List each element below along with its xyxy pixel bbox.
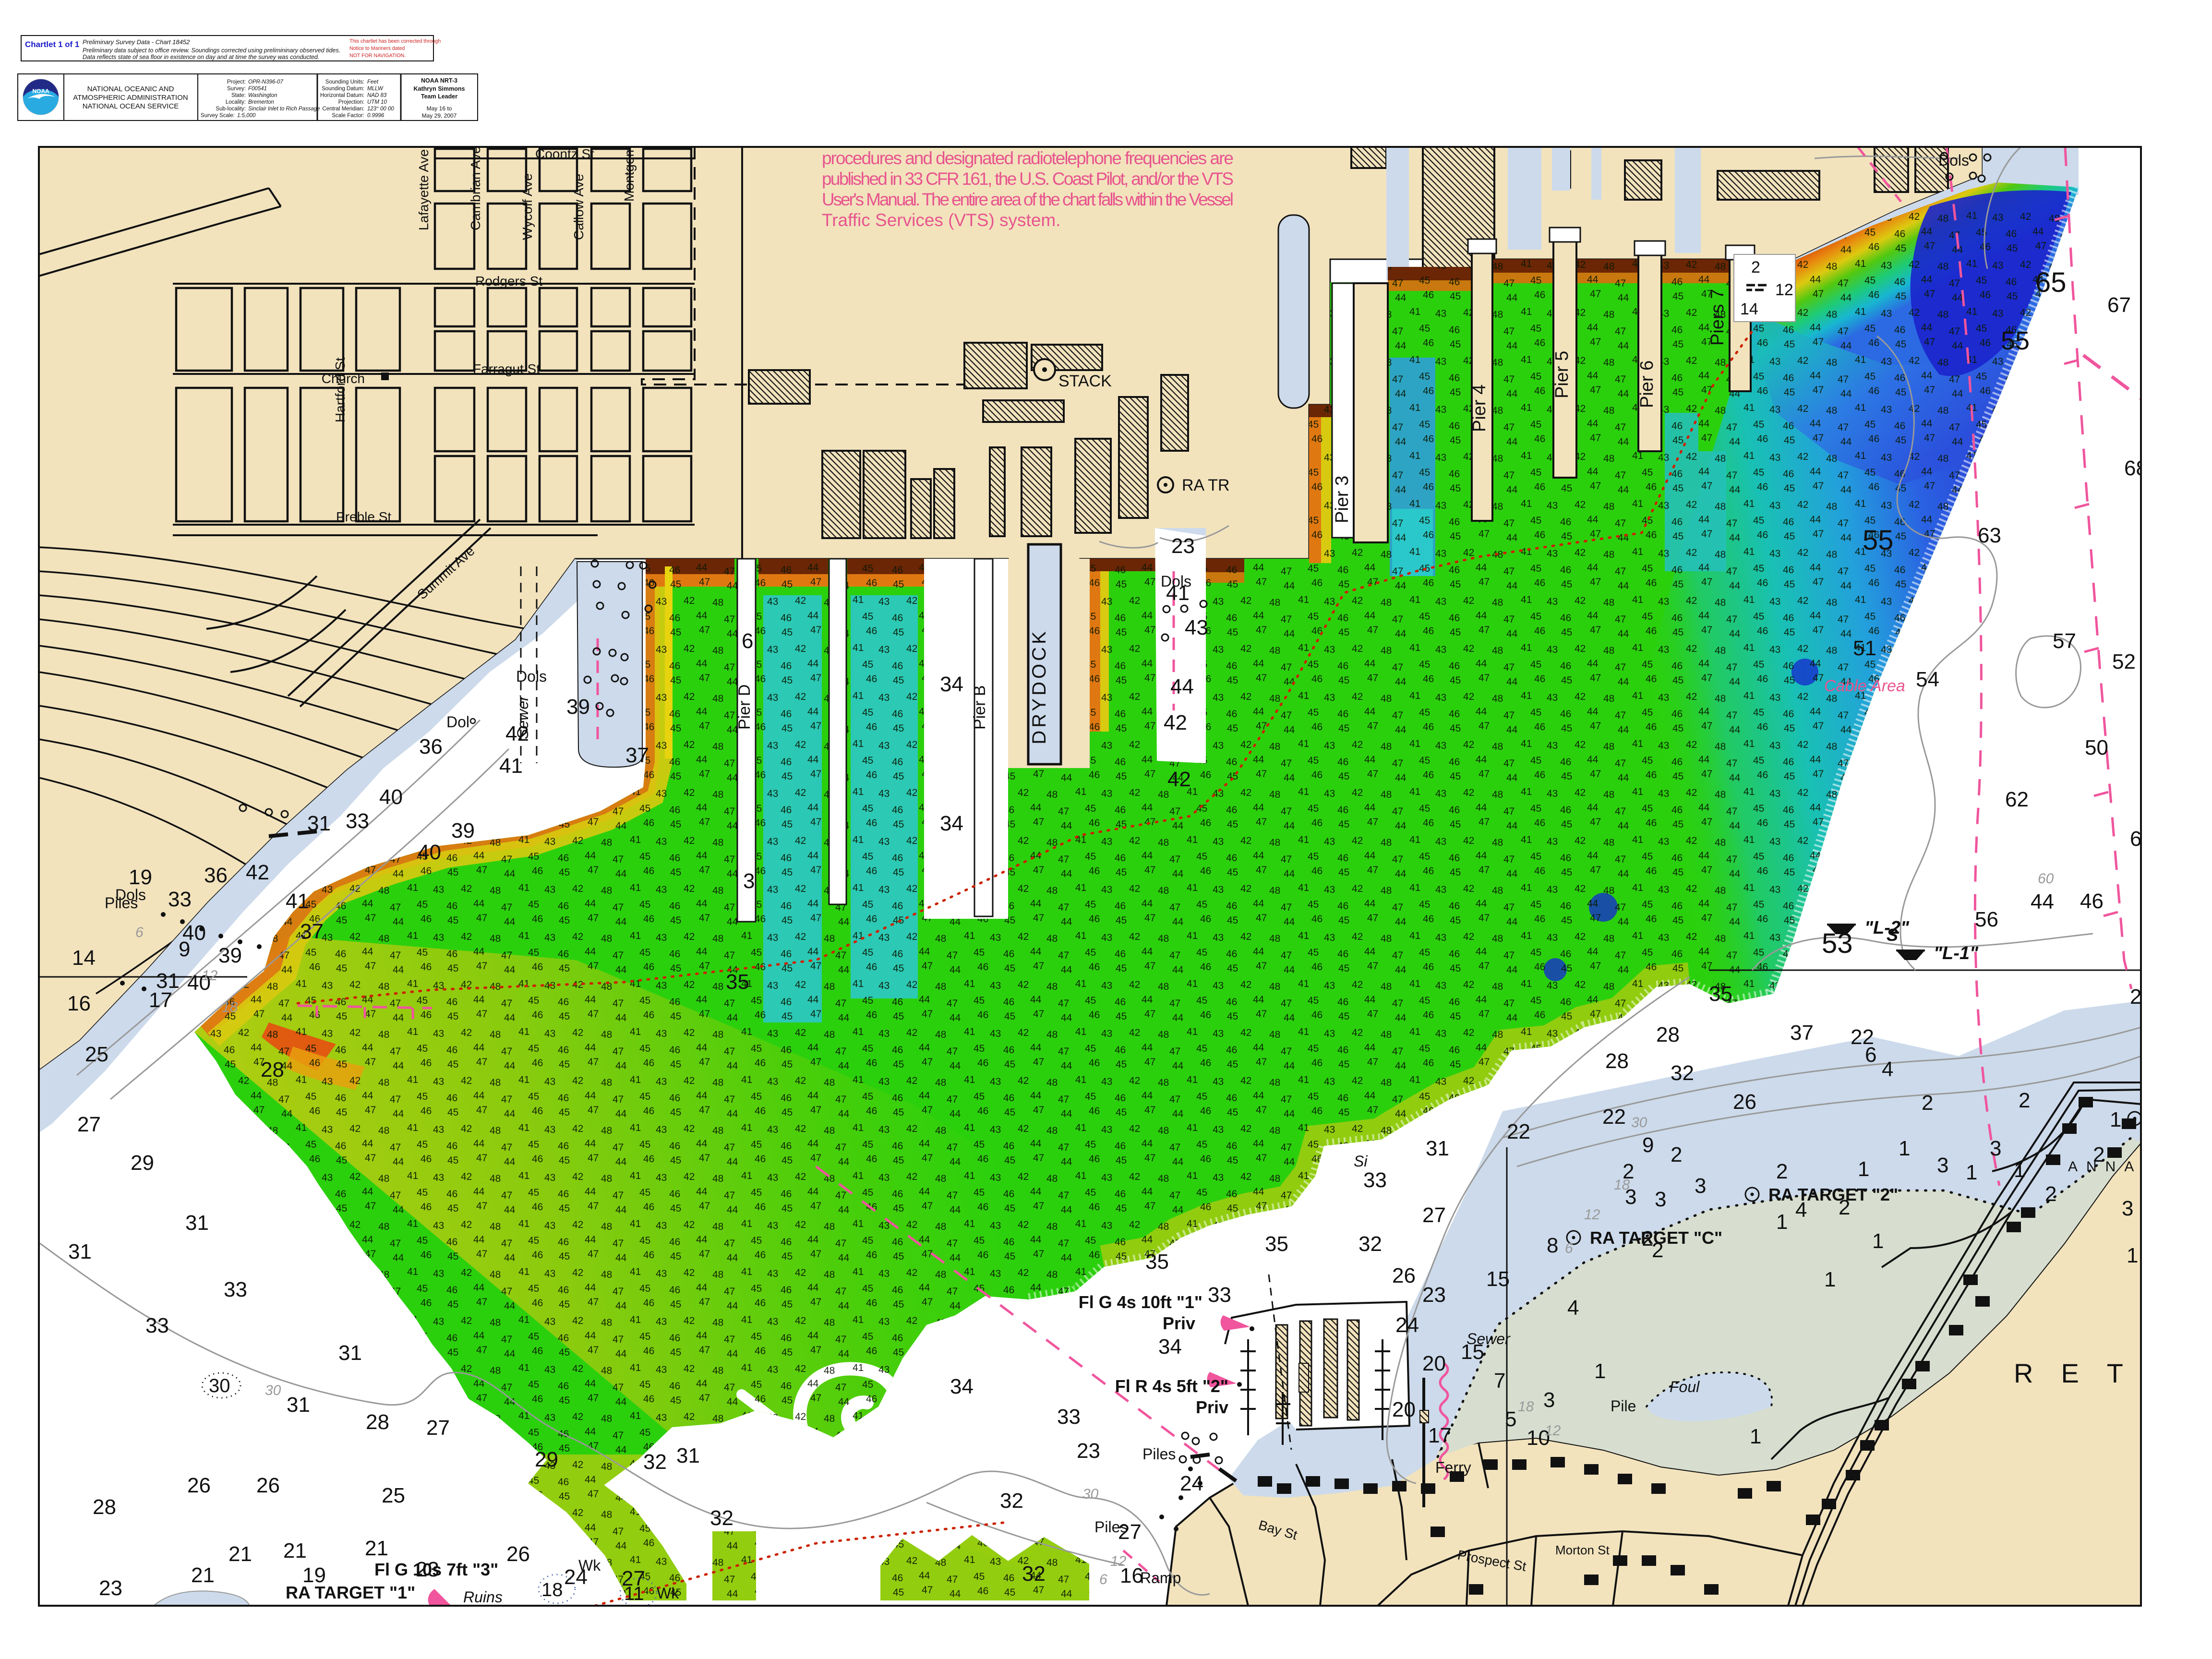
svg-text:Sounding Units:: Sounding Units:	[325, 79, 364, 85]
svg-text:21: 21	[191, 1563, 215, 1587]
svg-text:32: 32	[1358, 1232, 1382, 1256]
svg-text:26: 26	[506, 1542, 530, 1566]
svg-text:Rodgers St: Rodgers St	[475, 274, 542, 289]
svg-text:3: 3	[2122, 1197, 2133, 1220]
svg-text:NOAA NRT-3: NOAA NRT-3	[421, 77, 457, 84]
svg-text:Central Meridian:: Central Meridian:	[322, 106, 364, 112]
svg-text:Dol: Dol	[446, 713, 469, 731]
svg-text:55: 55	[1863, 525, 1894, 556]
svg-text:18: 18	[222, 999, 238, 1015]
svg-text:Cambrian Ave: Cambrian Ave	[468, 146, 483, 230]
svg-text:17: 17	[1428, 1424, 1452, 1447]
svg-text:Preliminary Survey Data - Char: Preliminary Survey Data - Chart 18452	[83, 38, 190, 46]
svg-text:23: 23	[1422, 1283, 1446, 1307]
svg-text:16: 16	[67, 992, 91, 1015]
svg-text:Kathryn Simmons: Kathryn Simmons	[414, 85, 465, 92]
svg-text:35: 35	[726, 970, 749, 994]
svg-text:F00541: F00541	[248, 86, 267, 92]
svg-text:34: 34	[940, 812, 963, 835]
svg-text:1: 1	[1824, 1268, 1836, 1291]
svg-text:27: 27	[1422, 1203, 1446, 1227]
svg-text:54: 54	[1916, 668, 1939, 691]
svg-text:29: 29	[131, 1151, 154, 1175]
svg-text:0.9996: 0.9996	[367, 113, 385, 119]
svg-text:Horizontal Datum:: Horizontal Datum:	[320, 93, 364, 98]
svg-text:33: 33	[1208, 1283, 1231, 1307]
svg-text:36: 36	[419, 735, 443, 758]
svg-text:31: 31	[307, 812, 331, 835]
svg-text:25: 25	[85, 1043, 108, 1066]
svg-text:2: 2	[1776, 1160, 1788, 1183]
svg-text:26: 26	[187, 1474, 211, 1497]
svg-text:53: 53	[1822, 928, 1853, 959]
svg-text:35: 35	[1265, 1232, 1288, 1256]
svg-text:33: 33	[346, 809, 369, 833]
svg-text:60: 60	[2038, 871, 2054, 887]
svg-text:2: 2	[1671, 1143, 1682, 1166]
svg-text:Survey Scale:: Survey Scale:	[201, 113, 235, 119]
svg-text:28: 28	[261, 1058, 284, 1082]
svg-text:20: 20	[1392, 1398, 1416, 1421]
svg-text:33: 33	[224, 1278, 247, 1301]
svg-text:1: 1	[2127, 1244, 2138, 1267]
svg-text:20: 20	[1422, 1352, 1446, 1375]
svg-text:Pier 6: Pier 6	[1637, 361, 1657, 408]
svg-text:May 29, 2007: May 29, 2007	[422, 112, 457, 119]
svg-text:27: 27	[1118, 1520, 1142, 1544]
svg-text:19: 19	[302, 1563, 326, 1587]
svg-text:41: 41	[286, 890, 309, 913]
svg-text:Piers 7: Piers 7	[1707, 289, 1728, 346]
svg-text:24: 24	[1180, 1472, 1203, 1495]
svg-text:42: 42	[1167, 768, 1191, 791]
svg-text:Sounding Datum:: Sounding Datum:	[322, 86, 364, 92]
svg-text:46: 46	[2080, 890, 2104, 913]
svg-text:18: 18	[541, 1579, 563, 1600]
svg-text:14: 14	[1740, 300, 1758, 318]
svg-text:MLLW: MLLW	[367, 86, 384, 92]
svg-text:1: 1	[2014, 1158, 2025, 1182]
svg-text:57: 57	[2053, 629, 2076, 653]
svg-text:Preble St: Preble St	[336, 509, 391, 524]
svg-text:3: 3	[1937, 1154, 1948, 1177]
svg-text:37: 37	[625, 744, 649, 767]
svg-text:42: 42	[505, 722, 529, 745]
svg-text:50: 50	[2085, 736, 2108, 759]
svg-text:Ruins: Ruins	[463, 1588, 503, 1606]
svg-text:Wycoff Ave: Wycoff Ave	[520, 173, 535, 240]
svg-text:28: 28	[366, 1410, 389, 1434]
svg-text:31: 31	[287, 1393, 310, 1417]
svg-text:Feet: Feet	[367, 79, 379, 85]
svg-text:23: 23	[99, 1576, 122, 1600]
svg-text:11: 11	[624, 1583, 644, 1604]
svg-text:NOAA: NOAA	[32, 88, 49, 95]
svg-text:Notice to Mariners dated: Notice to Mariners dated	[349, 46, 405, 51]
svg-text:35: 35	[1145, 1250, 1169, 1274]
svg-text:Bremerton: Bremerton	[248, 99, 274, 105]
svg-text:23: 23	[1171, 534, 1195, 558]
svg-text:14: 14	[72, 946, 96, 970]
svg-text:67: 67	[2107, 293, 2131, 317]
svg-text:UTM 10: UTM 10	[367, 99, 387, 105]
svg-text:Project:: Project:	[227, 79, 246, 85]
svg-text:Hartford St: Hartford St	[333, 357, 348, 422]
svg-text:RA TARGET "2": RA TARGET "2"	[1768, 1185, 1898, 1204]
svg-text:33: 33	[1057, 1405, 1081, 1429]
svg-text:DRYDOCK: DRYDOCK	[1029, 628, 1050, 744]
svg-text:22: 22	[1602, 1105, 1626, 1129]
svg-text:21: 21	[365, 1537, 388, 1560]
svg-text:Team Leader: Team Leader	[421, 93, 457, 100]
svg-text:12: 12	[1545, 1423, 1561, 1439]
svg-text:52: 52	[2112, 650, 2136, 673]
svg-text:24: 24	[564, 1565, 588, 1589]
svg-text:32: 32	[1000, 1489, 1023, 1513]
svg-text:STACK: STACK	[1058, 372, 1112, 390]
svg-text:Lafayette Ave: Lafayette Ave	[416, 149, 431, 230]
svg-text:23: 23	[1077, 1439, 1100, 1463]
svg-text:28: 28	[1605, 1049, 1629, 1073]
svg-text:Pile: Pile	[1611, 1397, 1636, 1415]
svg-text:1: 1	[1594, 1359, 1606, 1383]
svg-text:12: 12	[202, 968, 218, 984]
svg-text:62: 62	[2005, 788, 2029, 811]
svg-text:26: 26	[256, 1474, 280, 1497]
svg-text:5: 5	[1505, 1407, 1516, 1431]
svg-text:Piles: Piles	[105, 894, 138, 912]
svg-text:41: 41	[1166, 581, 1190, 605]
svg-text:Priv: Priv	[1163, 1313, 1195, 1333]
svg-text:34: 34	[950, 1375, 974, 1398]
svg-text:21: 21	[283, 1539, 307, 1563]
svg-text:1: 1	[1776, 1210, 1788, 1234]
svg-text:37: 37	[300, 920, 324, 943]
svg-text:24: 24	[1395, 1313, 1419, 1337]
svg-text:65: 65	[2035, 267, 2067, 298]
svg-text:30: 30	[1082, 1486, 1099, 1502]
svg-text:39: 39	[451, 819, 475, 842]
svg-text:Cable Area: Cable Area	[1824, 677, 1905, 695]
svg-text:8: 8	[1547, 1234, 1558, 1257]
svg-text:Foul: Foul	[1670, 1378, 1700, 1395]
svg-text:RA TR: RA TR	[1182, 476, 1230, 494]
svg-text:State:: State:	[231, 93, 246, 98]
svg-text:3: 3	[1990, 1137, 2001, 1160]
svg-text:18: 18	[1518, 1399, 1534, 1415]
svg-text:Pier 4: Pier 4	[1469, 385, 1490, 432]
svg-text:27: 27	[77, 1113, 101, 1136]
svg-text:32: 32	[1022, 1562, 1046, 1586]
svg-text:31: 31	[68, 1240, 92, 1263]
svg-text:29: 29	[535, 1448, 558, 1471]
svg-text:51: 51	[1853, 637, 1876, 660]
svg-text:NOT FOR NAVIGATION.: NOT FOR NAVIGATION.	[349, 53, 406, 59]
svg-text:19: 19	[129, 866, 152, 889]
svg-text:33: 33	[145, 1314, 169, 1337]
svg-text:2: 2	[1922, 1091, 1933, 1115]
svg-text:3: 3	[1543, 1388, 1555, 1412]
svg-text:123° 00 00: 123° 00 00	[367, 106, 394, 112]
svg-text:May 16 to: May 16 to	[427, 105, 452, 112]
svg-text:44: 44	[1170, 675, 1194, 698]
svg-text:Dols: Dols	[516, 668, 547, 685]
svg-text:15: 15	[1461, 1340, 1484, 1364]
svg-text:Fl R 4s 5ft "2": Fl R 4s 5ft "2"	[1115, 1376, 1228, 1396]
svg-text:28: 28	[93, 1495, 116, 1519]
svg-text:Dols: Dols	[1938, 152, 1969, 169]
svg-text:4: 4	[1795, 1198, 1807, 1222]
svg-text:6: 6	[135, 925, 144, 940]
svg-text:40: 40	[418, 841, 441, 864]
svg-text:2: 2	[1751, 258, 1760, 276]
svg-text:9: 9	[1642, 1133, 1654, 1157]
svg-text:42: 42	[246, 861, 269, 884]
svg-text:41: 41	[499, 754, 523, 778]
svg-text:6: 6	[1099, 1572, 1107, 1587]
svg-text:35: 35	[1709, 982, 1732, 1006]
svg-text:31: 31	[338, 1341, 362, 1365]
svg-text:Traffic Services (VTS) system.: Traffic Services (VTS) system.	[822, 210, 1061, 230]
svg-text:Si: Si	[1354, 1153, 1368, 1170]
svg-text:33: 33	[1363, 1168, 1387, 1192]
svg-text:12: 12	[1584, 1207, 1600, 1223]
svg-text:Washington: Washington	[248, 93, 277, 98]
svg-text:3: 3	[1695, 1174, 1706, 1198]
svg-text:2: 2	[1839, 1196, 1850, 1219]
svg-text:27: 27	[426, 1416, 450, 1440]
svg-text:4: 4	[1567, 1296, 1579, 1320]
svg-text:1: 1	[1966, 1161, 1977, 1184]
svg-text:NATIONAL OCEANIC AND: NATIONAL OCEANIC AND	[87, 85, 174, 93]
svg-text:56: 56	[1975, 908, 1998, 931]
svg-text:Priv: Priv	[1196, 1397, 1228, 1417]
svg-text:2: 2	[2019, 1089, 2030, 1112]
svg-text:1: 1	[1899, 1137, 1910, 1160]
svg-text:1: 1	[1872, 1229, 1884, 1253]
svg-text:36: 36	[204, 864, 228, 887]
svg-text:Wk: Wk	[657, 1585, 679, 1602]
svg-text:7: 7	[1494, 1369, 1505, 1393]
svg-text:30: 30	[1631, 1115, 1647, 1130]
svg-text:"L-1": "L-1"	[1934, 943, 1979, 963]
svg-text:39: 39	[566, 695, 590, 719]
svg-text:40: 40	[182, 921, 206, 945]
svg-text:Sinclair Inlet to Rich Passage: Sinclair Inlet to Rich Passage	[248, 106, 320, 112]
svg-text:Pier B: Pier B	[971, 685, 989, 730]
svg-text:17: 17	[149, 988, 172, 1012]
svg-text:1: 1	[1858, 1157, 1869, 1181]
svg-text:Farragut St: Farragut St	[473, 361, 540, 376]
svg-text:32: 32	[710, 1506, 733, 1530]
svg-text:23: 23	[416, 1558, 439, 1581]
svg-text:25: 25	[382, 1484, 405, 1507]
svg-text:3: 3	[1655, 1188, 1666, 1211]
svg-text:39: 39	[218, 944, 242, 967]
svg-text:22: 22	[1507, 1120, 1530, 1143]
svg-text:Ramp: Ramp	[1140, 1569, 1181, 1587]
svg-text:4: 4	[1882, 1058, 1893, 1081]
svg-text:31: 31	[1426, 1137, 1449, 1160]
svg-text:Chartlet 1 of 1: Chartlet 1 of 1	[25, 40, 79, 49]
svg-text:12: 12	[1110, 1553, 1127, 1569]
svg-text:Callow Ave: Callow Ave	[571, 174, 586, 240]
svg-text:1: 1	[2110, 1108, 2121, 1131]
svg-text:43: 43	[1185, 616, 1208, 639]
svg-text:1:5,000: 1:5,000	[237, 113, 256, 119]
svg-text:Locality:: Locality:	[226, 99, 246, 105]
svg-text:6: 6	[1565, 1240, 1573, 1256]
svg-text:ATMOSPHERIC ADMINISTRATION: ATMOSPHERIC ADMINISTRATION	[73, 94, 188, 102]
svg-text:Projection:: Projection:	[338, 99, 364, 105]
svg-text:Data reflects state of sea flo: Data reflects state of sea floor in exis…	[83, 54, 319, 60]
svg-text:44: 44	[2031, 890, 2054, 914]
svg-text:30: 30	[209, 1375, 230, 1396]
svg-text:Pier 3: Pier 3	[1332, 476, 1352, 523]
svg-text:1: 1	[1750, 1425, 1761, 1448]
svg-text:55: 55	[2001, 326, 2030, 355]
svg-text:This chartlet has been correct: This chartlet has been corrected through	[349, 38, 441, 44]
svg-text:15: 15	[1486, 1267, 1510, 1291]
svg-text:21: 21	[228, 1542, 252, 1566]
svg-text:42: 42	[1164, 711, 1187, 734]
svg-text:6: 6	[742, 629, 753, 653]
svg-text:30: 30	[265, 1382, 281, 1398]
svg-text:S: S	[1887, 925, 1898, 945]
svg-text:37: 37	[1790, 1021, 1814, 1045]
svg-text:32: 32	[1671, 1061, 1694, 1085]
svg-text:User's Manual. The entire are: User's Manual. The entire area of the ch…	[822, 190, 1234, 209]
svg-text:2: 2	[1642, 1227, 1653, 1250]
svg-text:2: 2	[2045, 1182, 2056, 1206]
svg-text:Morton St: Morton St	[1555, 1543, 1610, 1557]
svg-text:Fl G 4s 10ft "1": Fl G 4s 10ft "1"	[1079, 1292, 1202, 1312]
svg-text:Pier D: Pier D	[735, 685, 754, 730]
svg-text:31: 31	[185, 1211, 209, 1235]
svg-text:2: 2	[2093, 1143, 2104, 1166]
svg-text:40: 40	[379, 785, 403, 809]
svg-text:22: 22	[1851, 1025, 1874, 1049]
svg-text:NATIONAL OCEAN SERVICE: NATIONAL OCEAN SERVICE	[83, 102, 179, 110]
svg-text:31: 31	[676, 1444, 700, 1467]
svg-text:32: 32	[643, 1450, 667, 1474]
svg-text:26: 26	[1392, 1264, 1416, 1287]
svg-text:Ferry: Ferry	[1435, 1459, 1471, 1476]
svg-text:33: 33	[168, 888, 192, 911]
svg-text:Scale Factor:: Scale Factor:	[332, 113, 364, 119]
svg-text:Coontz St: Coontz St	[535, 146, 594, 161]
svg-text:34: 34	[940, 673, 963, 696]
svg-text:procedures and designated radi: procedures and designated radiotelephone…	[822, 148, 1234, 168]
svg-text:12: 12	[1775, 281, 1793, 299]
svg-text:NAD 83: NAD 83	[367, 93, 387, 98]
svg-text:Survey:: Survey:	[227, 86, 246, 92]
svg-text:Pier 5: Pier 5	[1552, 351, 1572, 398]
svg-text:published in 33 CFR 161, the U: published in 33 CFR 161, the U.S. Coast …	[822, 169, 1234, 189]
svg-text:Piles: Piles	[1142, 1445, 1176, 1463]
svg-text:3: 3	[743, 869, 755, 893]
svg-text:OPR-N396-07: OPR-N396-07	[248, 79, 283, 85]
svg-text:Preliminary data subject to of: Preliminary data subject to office revie…	[83, 47, 340, 54]
svg-text:26: 26	[1733, 1090, 1756, 1114]
svg-text:63: 63	[1978, 524, 2001, 547]
svg-text:34: 34	[1158, 1335, 1182, 1358]
svg-text:18: 18	[1614, 1177, 1630, 1193]
svg-text:28: 28	[1656, 1023, 1680, 1046]
svg-text:Sub-locality:: Sub-locality:	[216, 106, 246, 112]
svg-text:2: 2	[1652, 1238, 1663, 1262]
